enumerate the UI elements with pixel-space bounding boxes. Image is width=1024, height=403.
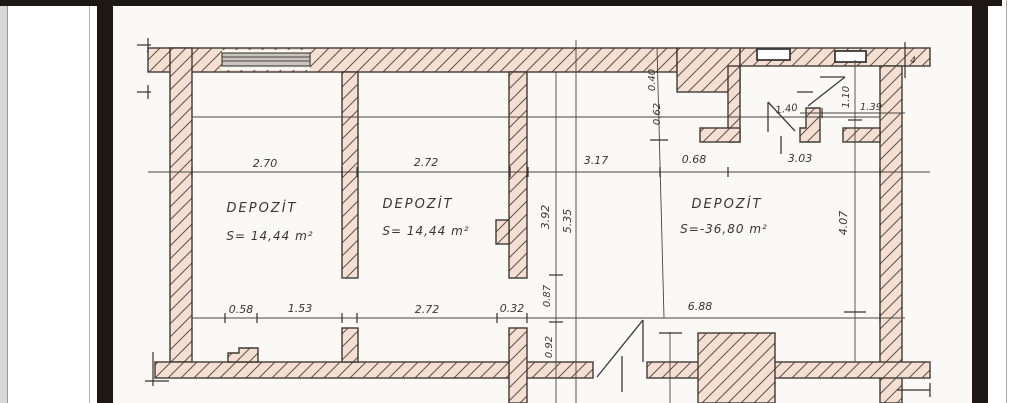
dim-label: 3.17 <box>584 154 609 167</box>
room-1-name: DEPOZİT <box>227 200 298 216</box>
bottom-door <box>597 320 643 392</box>
dim-label-vertical: 4.07 <box>837 211 850 236</box>
dim-label: 3.03 <box>788 152 813 165</box>
bottom-pillar <box>698 333 775 403</box>
right-wall <box>880 66 902 403</box>
window <box>222 50 310 70</box>
lintel-2 <box>835 51 866 62</box>
alcove-sill-left <box>700 128 740 142</box>
dim-label: 2.70 <box>253 157 278 170</box>
axis-mark-label: 4 <box>910 56 916 66</box>
dim-label: 2.72 <box>415 303 440 316</box>
labels-group: 2.70 2.72 3.17 0.68 3.03 0.58 1.53 2.72 … <box>226 56 916 358</box>
dim-label: 0.68 <box>682 153 707 166</box>
dim-label: 6.88 <box>688 300 713 313</box>
dim-label-vertical: 3.92 <box>539 205 552 230</box>
room-2-area: S= 14,44 m² <box>382 224 469 238</box>
dim-label-vertical: 1.10 <box>841 86 852 108</box>
window-frame <box>222 53 310 66</box>
document-viewer: 2.70 2.72 3.17 0.68 3.03 0.58 1.53 2.72 … <box>0 0 1024 403</box>
dim-label: 1.39 <box>860 102 882 113</box>
bottom-step <box>228 348 258 362</box>
partition-1-stub <box>342 328 358 362</box>
door-width-label: 1.40 <box>775 103 799 117</box>
dim-label: 1.53 <box>288 302 313 315</box>
dim-label: 0.32 <box>500 302 525 315</box>
room-1-area: S= 14,44 m² <box>226 229 313 243</box>
dim-label-vertical: 5.35 <box>561 209 574 234</box>
alcove-door-2 <box>797 77 845 106</box>
partition-1 <box>342 72 358 278</box>
dim-label-vertical: 0.40 <box>647 69 658 91</box>
dim-label-vertical: 0.87 <box>542 284 553 307</box>
room-3-name: DEPOZİT <box>692 196 763 212</box>
left-wall <box>170 48 192 362</box>
partition-2-pier <box>496 220 509 244</box>
room-2-name: DEPOZİT <box>383 196 454 212</box>
floor-plan-drawing: 2.70 2.72 3.17 0.68 3.03 0.58 1.53 2.72 … <box>0 0 1024 403</box>
dim-label-vertical: 0.62 <box>652 103 663 125</box>
partition-2 <box>509 72 527 278</box>
bottom-wall-right <box>647 362 930 378</box>
partition-2-stub <box>509 328 527 403</box>
alcove-sill-right <box>843 128 880 142</box>
dim-label: 2.72 <box>414 156 439 169</box>
dim-label-vertical: 0.92 <box>544 336 555 358</box>
room-3-area: S=-36,80 m² <box>680 222 768 236</box>
lintel-1 <box>757 49 790 60</box>
dim-label: 0.58 <box>229 303 254 316</box>
